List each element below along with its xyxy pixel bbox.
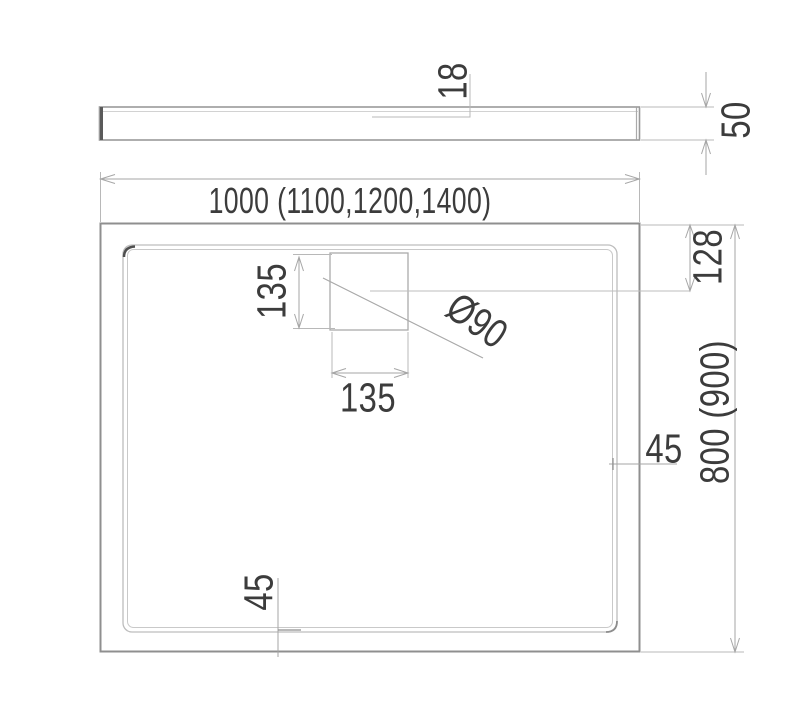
- dim-label-drain-box-height: 135: [252, 263, 293, 319]
- dim-label-profile-thickness: 18: [433, 62, 474, 99]
- profile-view: [100, 72, 715, 175]
- dim-label-tray-depth: 800 (900): [695, 340, 736, 484]
- dim-label-profile-height: 50: [716, 101, 757, 138]
- dim-label-tray-width: 1000 (1100,1200,1400): [209, 183, 492, 219]
- shower-tray-technical-drawing: 18 50 1000 (1100,1200,1400) 135 135 Ø90 …: [0, 0, 790, 705]
- dim-label-rim-gap-bottom: 45: [239, 573, 280, 610]
- dim-label-drain-offset: 128: [688, 229, 729, 285]
- dim-label-rim-gap-right: 45: [645, 429, 682, 470]
- plan-view: [101, 224, 691, 652]
- tray-outline: [101, 224, 640, 652]
- drawing-linework: [0, 0, 790, 705]
- dim-label-drain-box-width: 135: [340, 378, 396, 419]
